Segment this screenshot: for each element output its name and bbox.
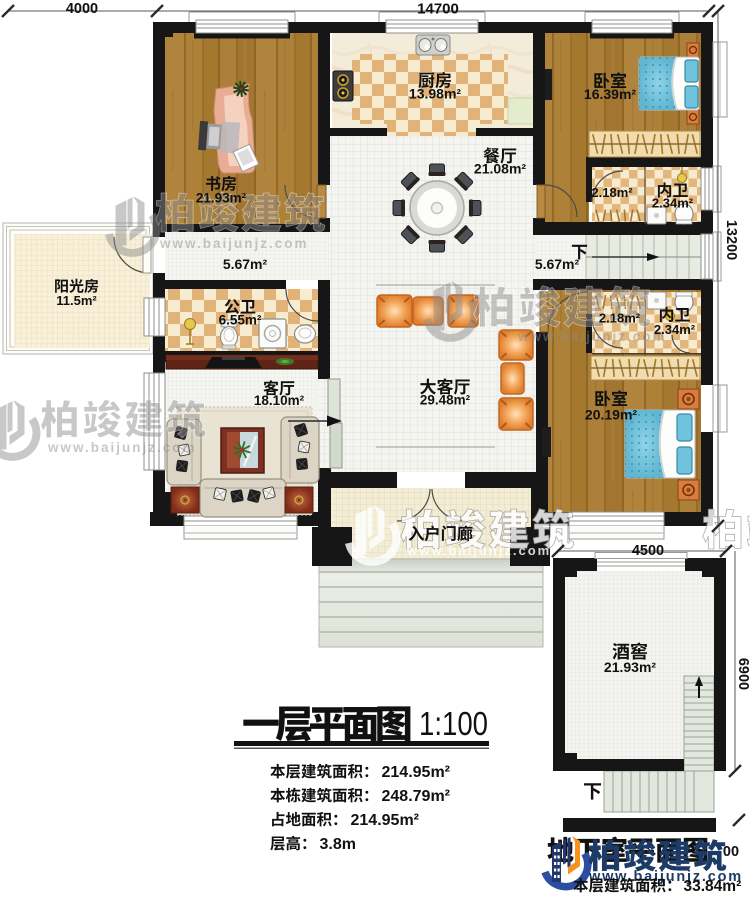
svg-text:29.48m²: 29.48m² xyxy=(420,393,471,408)
svg-text:33.84m²: 33.84m² xyxy=(684,878,742,895)
svg-text:2.34m²: 2.34m² xyxy=(652,196,694,211)
svg-text:21.93m²: 21.93m² xyxy=(196,191,247,206)
svg-text:13.98m²: 13.98m² xyxy=(409,86,461,102)
svg-text:21.93m²: 21.93m² xyxy=(604,659,656,675)
svg-text:2.34m²: 2.34m² xyxy=(654,322,696,337)
svg-text:14700: 14700 xyxy=(417,1,459,18)
svg-text:www.baijunjz.com: www.baijunjz.com xyxy=(517,329,667,344)
svg-text:www.baijunjz.com: www.baijunjz.com xyxy=(47,440,197,455)
svg-text:5.67m²: 5.67m² xyxy=(223,256,268,272)
svg-text:www.baijunjz.com: www.baijunjz.com xyxy=(406,543,551,558)
svg-text:18.10m²: 18.10m² xyxy=(254,393,305,408)
svg-text:1:100: 1:100 xyxy=(419,706,488,743)
svg-text:5.67m²: 5.67m² xyxy=(535,256,580,272)
svg-text:214.95m²: 214.95m² xyxy=(382,764,451,781)
svg-text:00: 00 xyxy=(723,844,739,860)
svg-text:2.18m²: 2.18m² xyxy=(591,185,633,200)
svg-text:3.8m: 3.8m xyxy=(320,836,356,853)
svg-text:6.55m²: 6.55m² xyxy=(219,313,262,328)
svg-text:16.39m²: 16.39m² xyxy=(584,86,636,102)
svg-text:214.95m²: 214.95m² xyxy=(351,812,420,829)
svg-text:20.19m²: 20.19m² xyxy=(585,407,637,423)
svg-text:11.5m²: 11.5m² xyxy=(56,293,97,308)
svg-text:6900: 6900 xyxy=(735,658,750,690)
svg-text:www.baijunjz.com: www.baijunjz.com xyxy=(159,236,309,251)
svg-text:248.79m²: 248.79m² xyxy=(382,788,451,805)
svg-text:4500: 4500 xyxy=(632,543,664,559)
svg-text:21.08m²: 21.08m² xyxy=(474,161,526,177)
svg-text:2.18m²: 2.18m² xyxy=(599,311,641,326)
svg-text:13200: 13200 xyxy=(723,220,739,260)
svg-text:4000: 4000 xyxy=(66,1,98,17)
